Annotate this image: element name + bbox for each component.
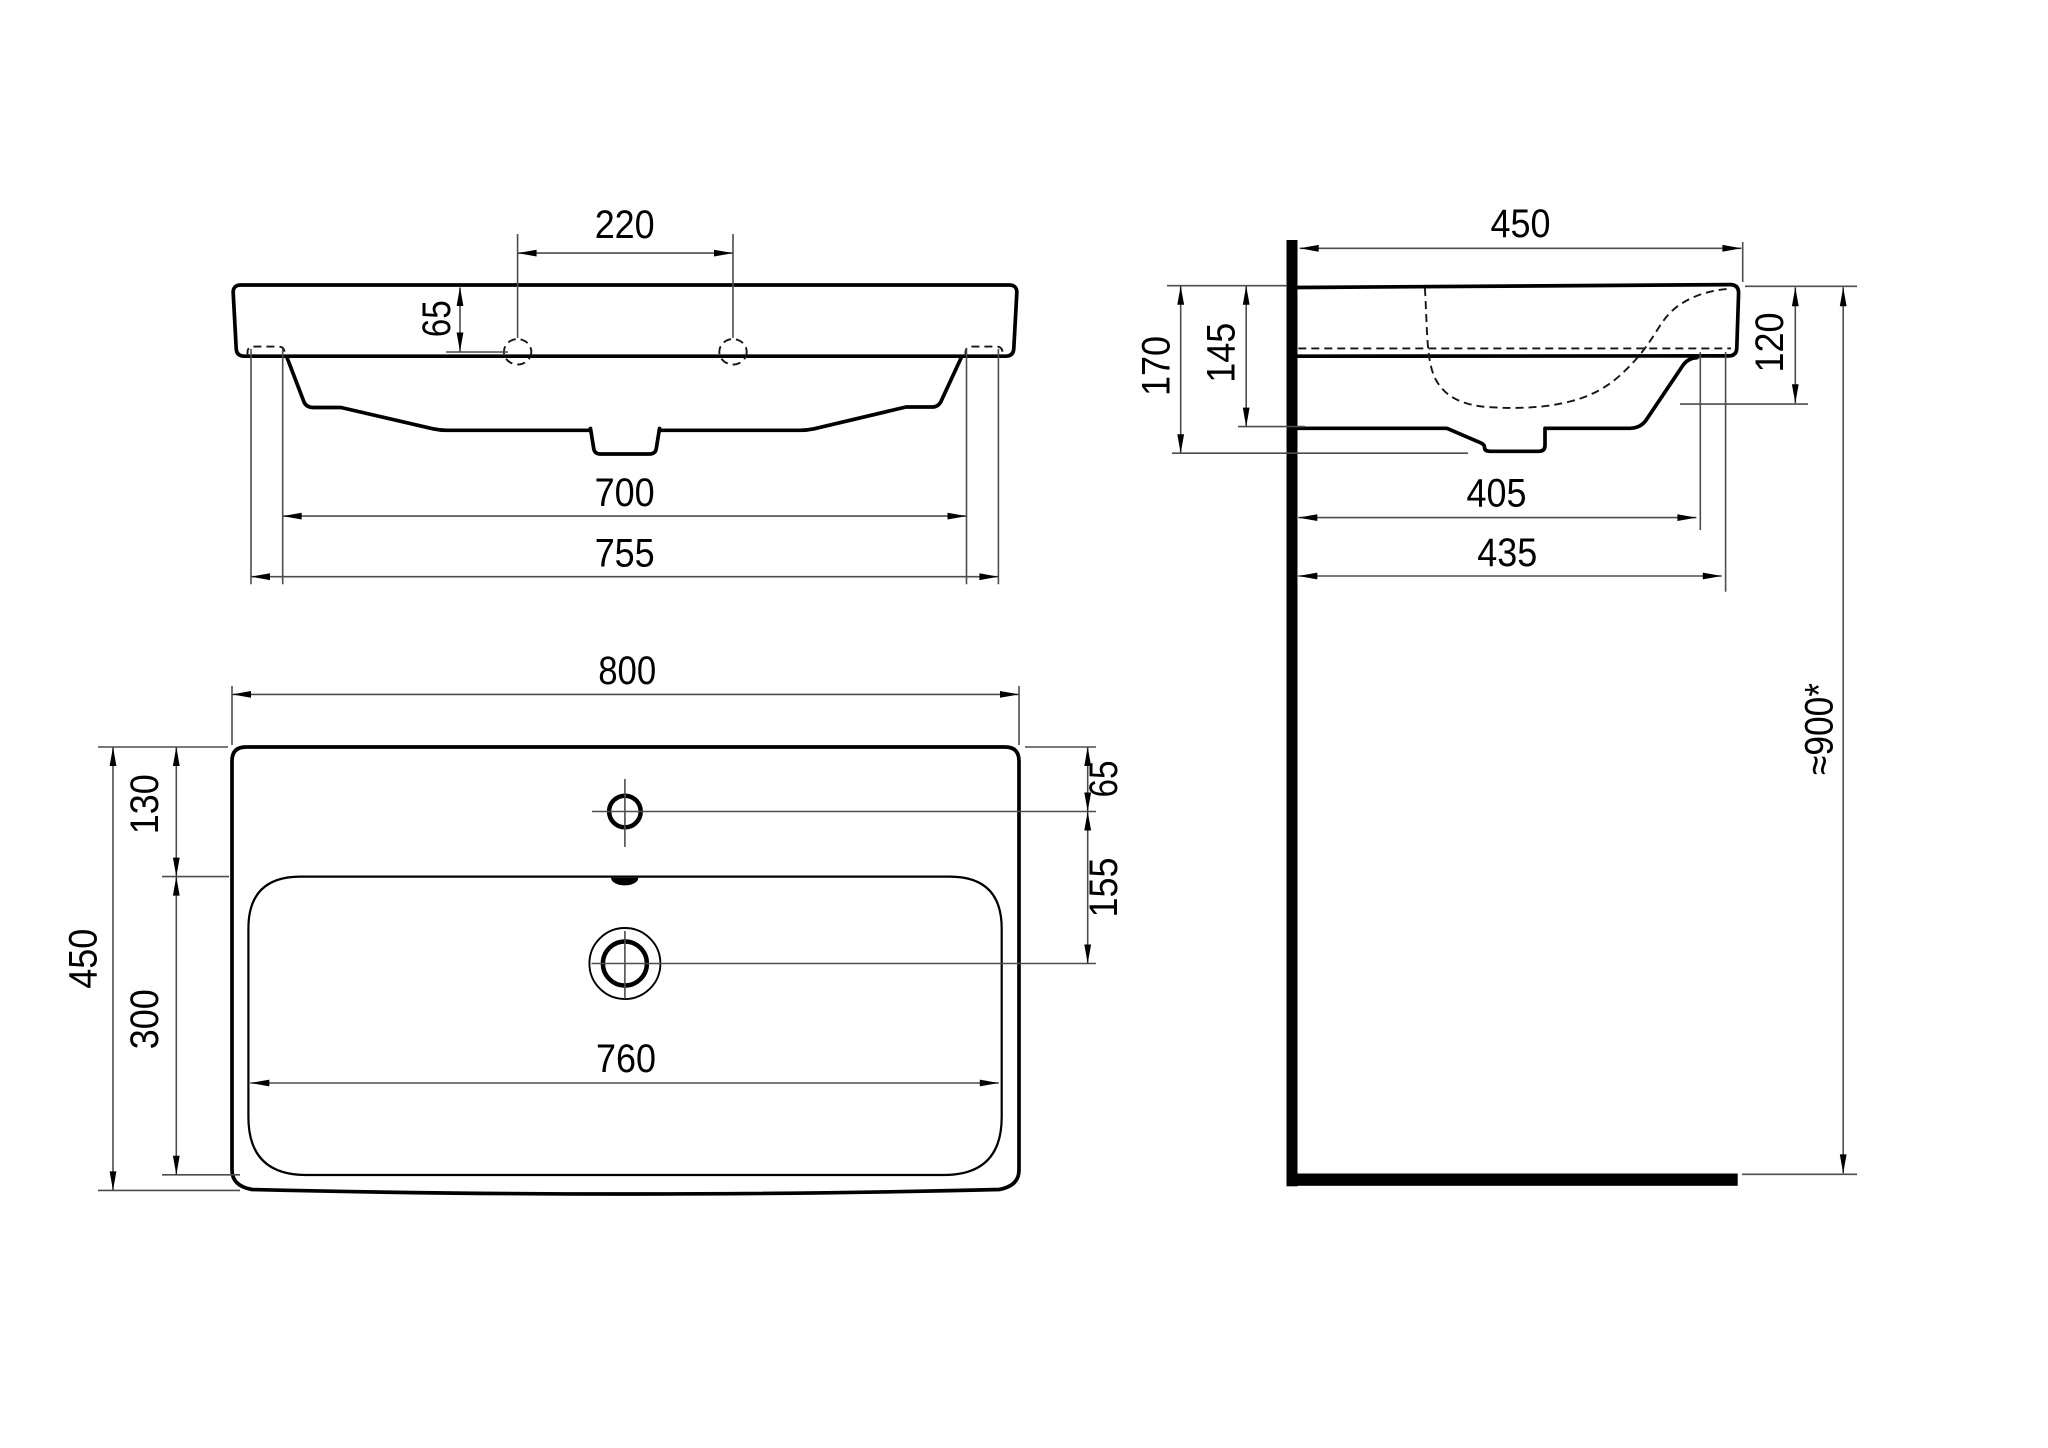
svg-text:130: 130 [123, 774, 167, 834]
svg-text:755: 755 [595, 531, 655, 575]
svg-text:65: 65 [415, 300, 459, 337]
svg-text:700: 700 [595, 471, 655, 515]
svg-text:450: 450 [1491, 202, 1551, 246]
svg-text:170: 170 [1135, 336, 1179, 396]
svg-text:155: 155 [1082, 858, 1126, 918]
svg-text:120: 120 [1748, 313, 1792, 373]
svg-text:760: 760 [596, 1037, 656, 1081]
svg-text:≈900*: ≈900* [1797, 683, 1841, 775]
svg-text:65: 65 [1082, 761, 1126, 798]
svg-text:435: 435 [1477, 531, 1537, 575]
svg-text:450: 450 [62, 929, 106, 989]
svg-text:145: 145 [1200, 323, 1244, 383]
svg-text:405: 405 [1467, 472, 1527, 516]
svg-text:220: 220 [595, 203, 655, 247]
svg-text:800: 800 [598, 649, 656, 693]
svg-text:300: 300 [123, 989, 167, 1049]
